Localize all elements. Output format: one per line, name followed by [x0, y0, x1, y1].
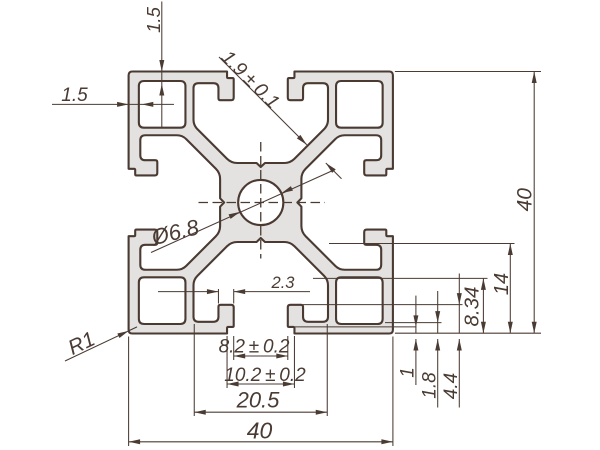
svg-text:1: 1	[398, 367, 419, 378]
svg-text:40: 40	[514, 188, 537, 212]
svg-text:1.8: 1.8	[420, 372, 441, 399]
svg-text:8.34: 8.34	[461, 287, 484, 327]
svg-text:8.2 ± 0.2: 8.2 ± 0.2	[219, 337, 290, 358]
svg-text:2.3: 2.3	[271, 274, 296, 292]
svg-text:1.5: 1.5	[61, 85, 88, 106]
svg-text:10.2 ± 0.2: 10.2 ± 0.2	[224, 365, 306, 386]
svg-text:40: 40	[247, 418, 273, 444]
svg-text:20.5: 20.5	[236, 388, 281, 413]
svg-text:1.5: 1.5	[143, 6, 164, 32]
svg-text:14: 14	[491, 273, 513, 295]
svg-text:4.4: 4.4	[441, 373, 462, 399]
